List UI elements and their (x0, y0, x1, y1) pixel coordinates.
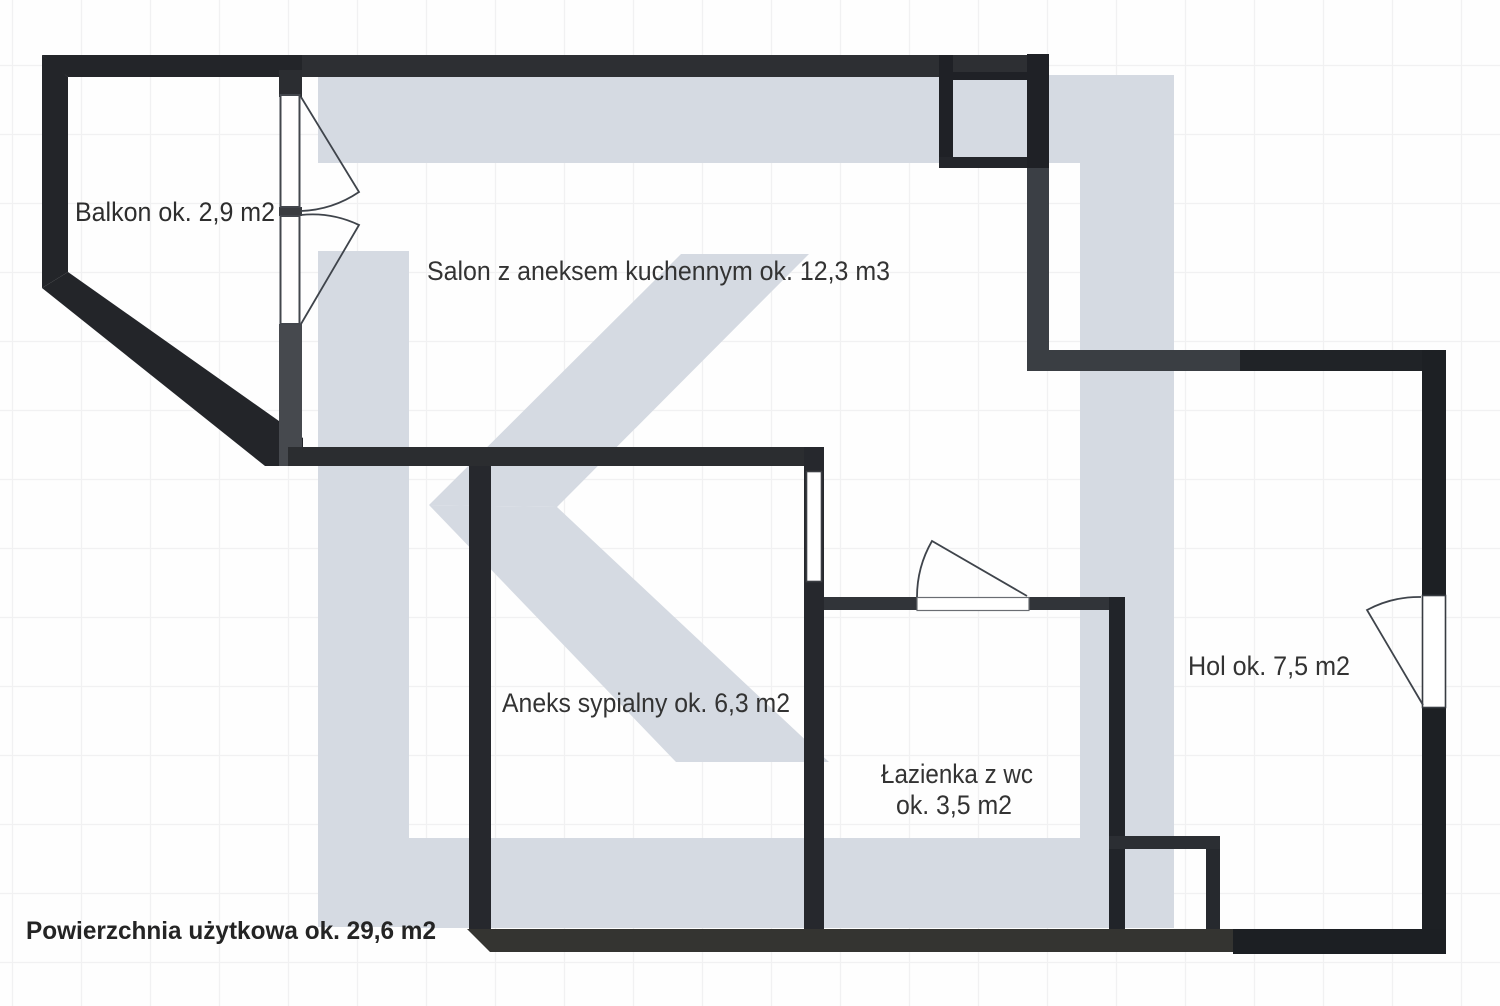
svg-text:Hol ok. 7,5 m2: Hol ok. 7,5 m2 (1188, 651, 1350, 681)
svg-text:Łazienka z wc: Łazienka z wc (881, 759, 1033, 789)
svg-text:Powierzchnia użytkowa ok. 29,6: Powierzchnia użytkowa ok. 29,6 m2 (26, 917, 436, 945)
svg-text:ok. 3,5 m2: ok. 3,5 m2 (896, 790, 1012, 820)
svg-text:Aneks sypialny ok. 6,3 m2: Aneks sypialny ok. 6,3 m2 (502, 688, 790, 718)
svg-text:Balkon ok. 2,9 m2: Balkon ok. 2,9 m2 (75, 197, 275, 227)
svg-text:Salon z aneksem kuchennym ok.: Salon z aneksem kuchennym ok. 12,3 m3 (427, 256, 890, 286)
